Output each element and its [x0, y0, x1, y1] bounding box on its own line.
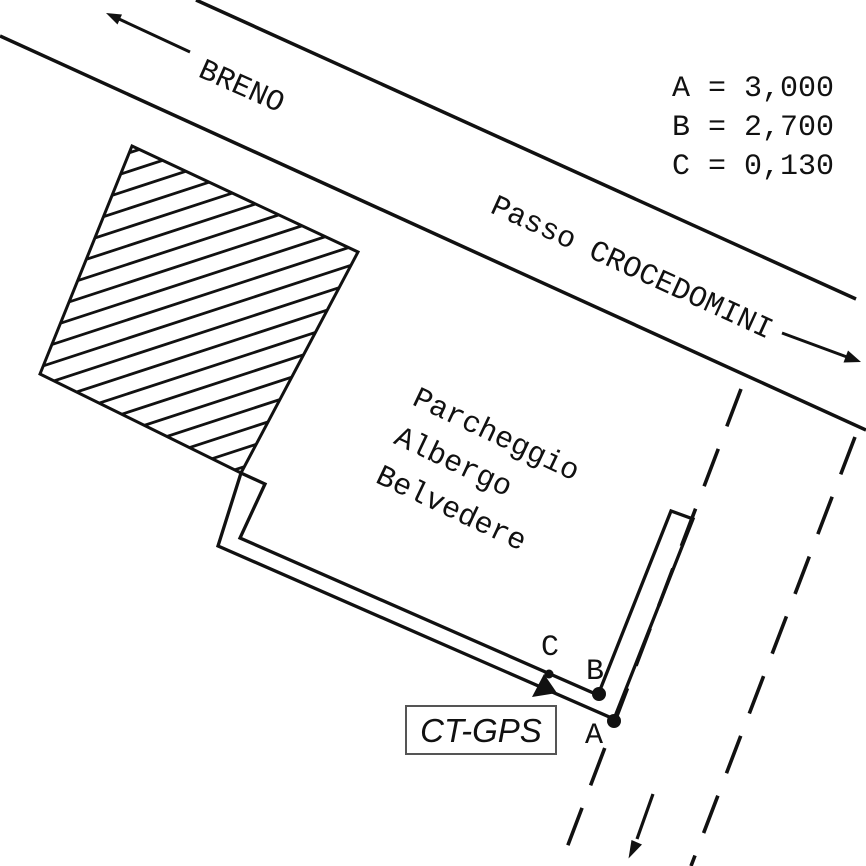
- svg-text:B = 2,700: B = 2,700: [672, 111, 834, 145]
- svg-text:CT-GPS: CT-GPS: [420, 712, 542, 749]
- svg-text:C: C: [541, 631, 559, 665]
- svg-text:C = 0,130: C = 0,130: [672, 150, 834, 184]
- svg-text:BRENO: BRENO: [193, 54, 289, 122]
- svg-text:B: B: [586, 655, 604, 689]
- svg-text:A: A: [585, 719, 603, 753]
- svg-text:A = 3,000: A = 3,000: [672, 72, 834, 106]
